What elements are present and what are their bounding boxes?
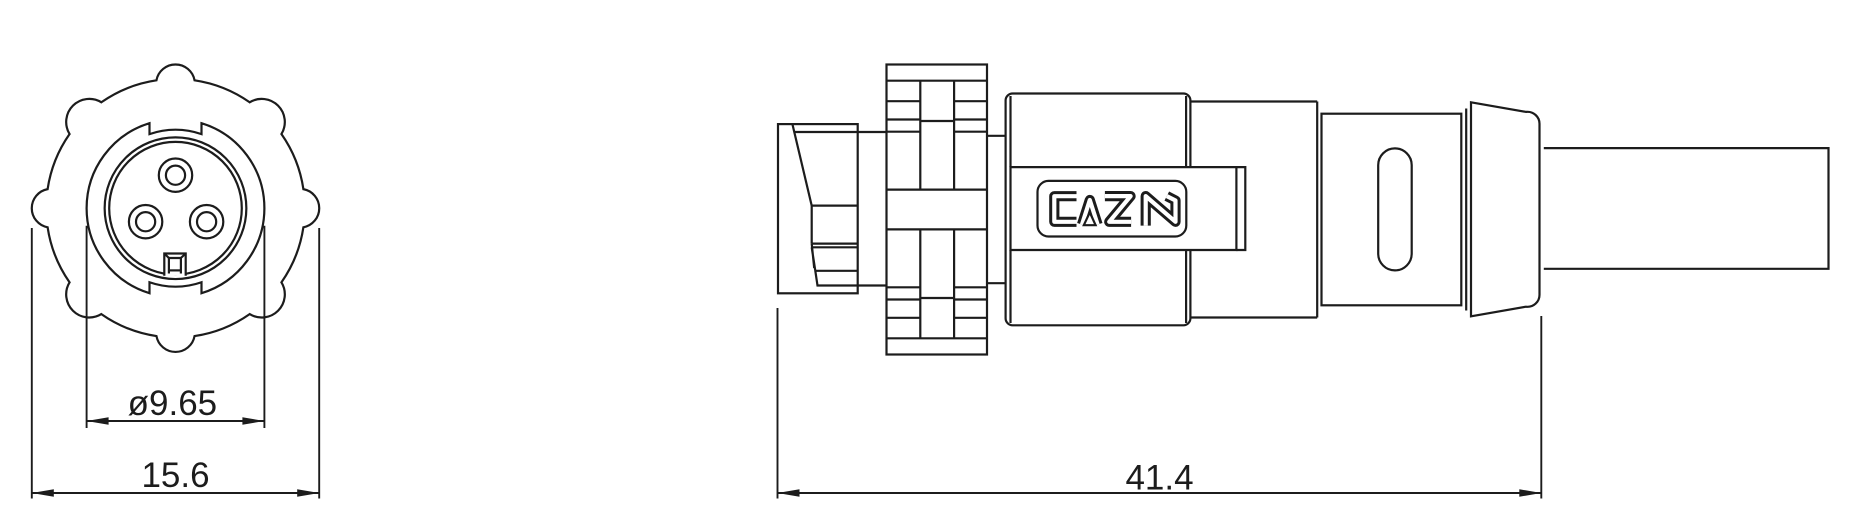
svg-text:15.6: 15.6 [141,456,209,495]
svg-text:ø9.65: ø9.65 [128,384,218,423]
svg-text:41.4: 41.4 [1125,459,1193,498]
